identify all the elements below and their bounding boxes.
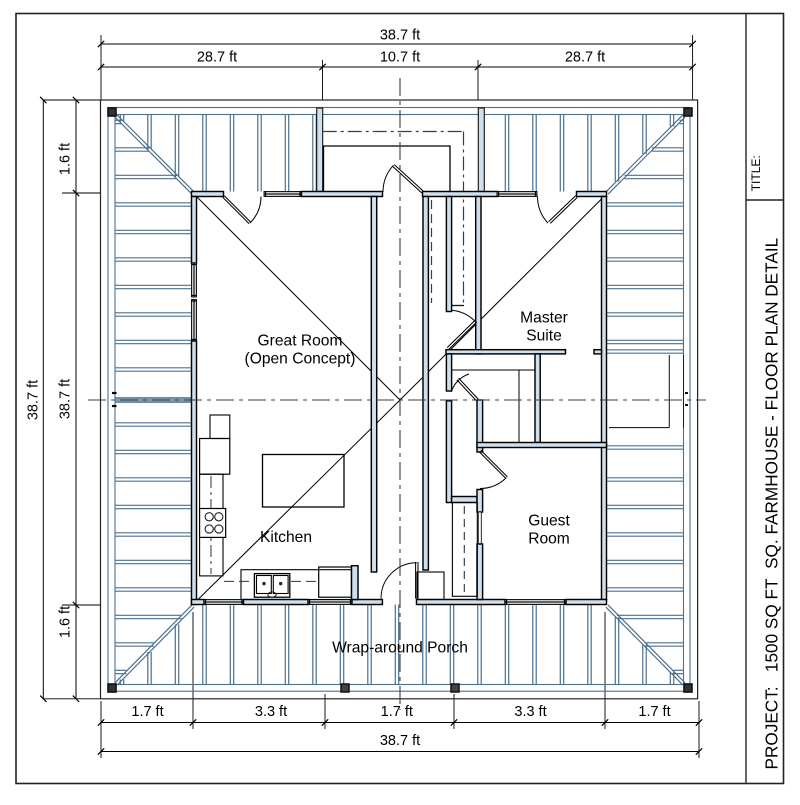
svg-text:28.7 ft: 28.7 ft <box>197 50 237 66</box>
svg-text:10.7 ft: 10.7 ft <box>380 50 420 66</box>
svg-text:3.3 ft: 3.3 ft <box>255 704 287 720</box>
svg-text:PROJECT: 1500 SQ FT SQ. FAR: PROJECT: 1500 SQ FT SQ. FARMHOUSE - FLOO… <box>761 238 781 770</box>
svg-text:1.7 ft: 1.7 ft <box>638 704 670 720</box>
svg-text:Guest: Guest <box>528 513 570 530</box>
svg-text:3.3 ft: 3.3 ft <box>514 704 546 720</box>
svg-text:Master: Master <box>520 310 568 327</box>
svg-text:1.7 ft: 1.7 ft <box>381 704 413 720</box>
svg-text:Suite: Suite <box>526 328 562 345</box>
svg-text:Kitchen: Kitchen <box>260 529 312 546</box>
svg-text:Wrap-around Porch: Wrap-around Porch <box>332 640 468 657</box>
svg-text:1.7 ft: 1.7 ft <box>131 704 163 720</box>
svg-text:1.6 ft: 1.6 ft <box>58 606 74 638</box>
svg-text:38.7 ft: 38.7 ft <box>380 733 420 749</box>
svg-text:38.7 ft: 38.7 ft <box>58 379 74 419</box>
svg-text:Room: Room <box>528 531 570 548</box>
svg-text:Great Room: Great Room <box>258 333 343 350</box>
svg-text:1.6 ft: 1.6 ft <box>58 143 74 175</box>
svg-text:28.7 ft: 28.7 ft <box>565 50 605 66</box>
svg-text:38.7 ft: 38.7 ft <box>26 380 42 420</box>
svg-text:38.7 ft: 38.7 ft <box>380 28 420 44</box>
svg-text:(Open Concept): (Open Concept) <box>245 351 356 368</box>
svg-text:TITLE:: TITLE: <box>749 155 763 191</box>
